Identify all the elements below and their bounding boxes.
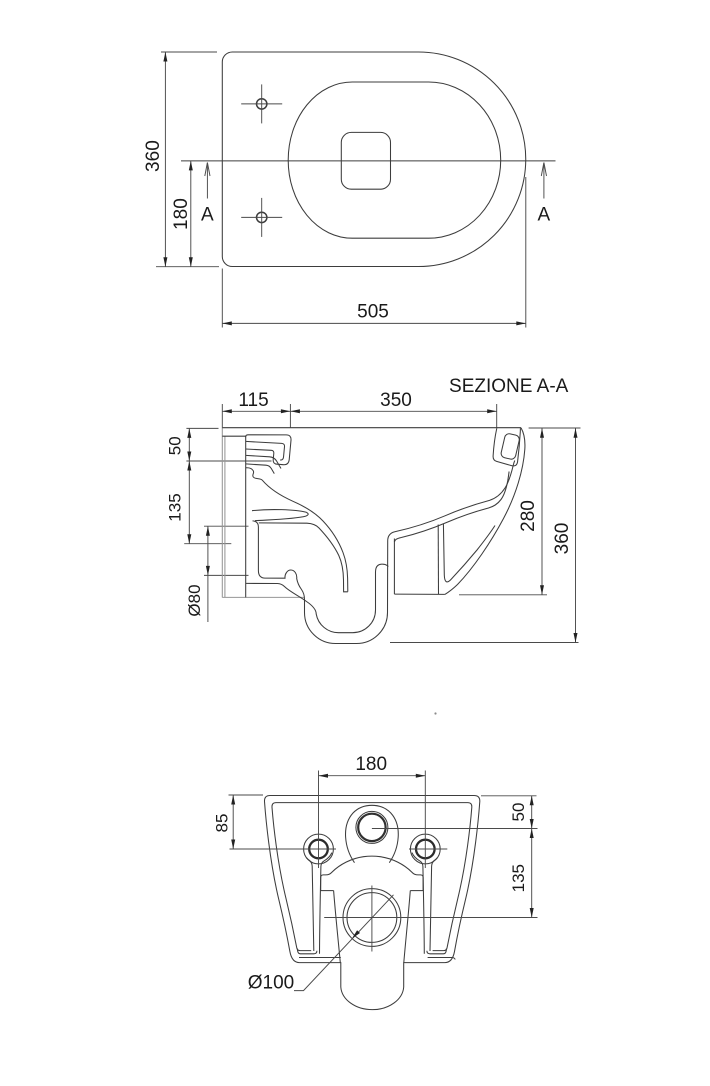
svg-text:360: 360 (552, 523, 573, 555)
svg-text:Ø100: Ø100 (248, 973, 294, 994)
svg-text:85: 85 (213, 814, 232, 833)
svg-text:350: 350 (380, 390, 412, 411)
svg-text:505: 505 (357, 302, 389, 323)
svg-text:280: 280 (518, 500, 539, 532)
svg-text:360: 360 (143, 140, 164, 172)
svg-text:180: 180 (171, 198, 192, 230)
svg-text:A: A (538, 205, 551, 226)
svg-text:50: 50 (165, 436, 184, 455)
svg-text:135: 135 (165, 493, 184, 521)
svg-text:115: 115 (238, 390, 268, 411)
svg-text:A: A (201, 205, 214, 226)
svg-text:180: 180 (355, 754, 387, 775)
svg-text:135: 135 (509, 864, 528, 892)
svg-text:SEZIONE A-A: SEZIONE A-A (449, 376, 569, 397)
svg-text:50: 50 (509, 803, 528, 822)
svg-text:Ø80: Ø80 (185, 584, 204, 616)
